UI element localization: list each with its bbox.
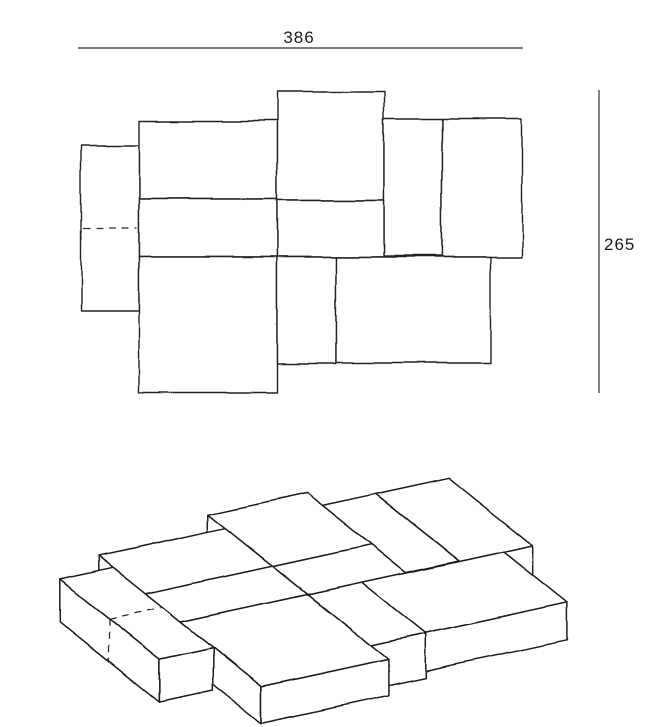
- plan-block-J: [336, 257, 490, 363]
- plan-block-H: [139, 257, 277, 393]
- plan-block-C: [277, 92, 384, 200]
- plan-block-D: [384, 118, 442, 256]
- plan-block-E: [442, 118, 522, 257]
- technical-drawing-page: 386 265: [0, 0, 659, 727]
- width-dimension-label: 386: [283, 28, 314, 47]
- isometric-view-drawing: [60, 478, 567, 723]
- plan-block-I: [277, 257, 336, 364]
- furniture-dimension-drawing: 386 265: [0, 0, 659, 727]
- plan-view-drawing: [81, 92, 522, 393]
- height-dimension-label: 265: [604, 235, 635, 254]
- plan-block-B: [139, 121, 277, 199]
- plan-block-A: [81, 145, 139, 311]
- plan-block-F: [139, 199, 277, 257]
- plan-block-G: [277, 200, 384, 257]
